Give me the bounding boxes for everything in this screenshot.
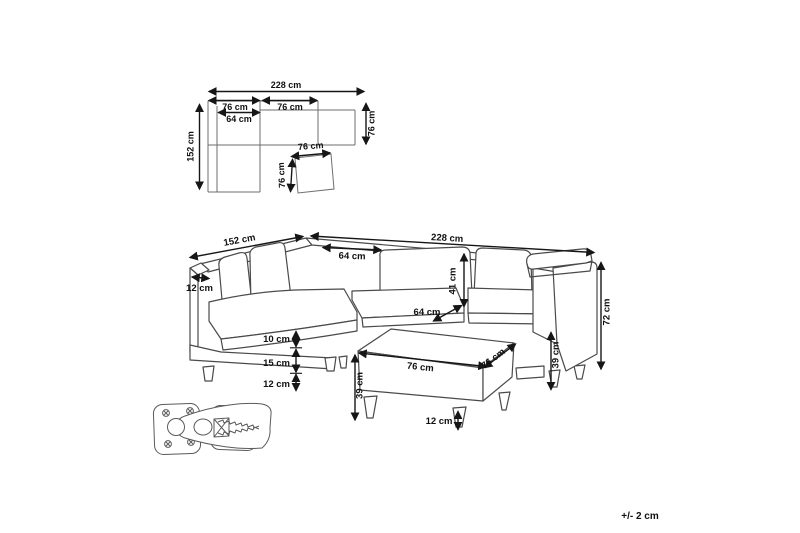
dim-ottoman-leg-height-label: 12 cm bbox=[426, 416, 453, 427]
ottoman-leg-rear-right bbox=[499, 392, 510, 410]
plan-dim-right-module-label: 76 cm bbox=[277, 102, 303, 112]
base-right-front bbox=[516, 366, 544, 379]
dim-ottoman-height-label: 39 cm bbox=[355, 372, 366, 399]
sofa-leg-corner-a bbox=[325, 357, 336, 371]
bracket-loop bbox=[194, 419, 212, 435]
ottoman bbox=[358, 329, 514, 427]
perspective-view: 152 cm 228 cm 64 cm 12 cm 41 cm 64 cm 10… bbox=[186, 232, 612, 429]
dimension-diagram: 228 cm 76 cm 76 cm 64 cm 152 cm 76 cm 76… bbox=[0, 0, 800, 533]
dim-leg-height-label: 12 cm bbox=[263, 379, 290, 390]
sofa-leg-corner-b bbox=[339, 356, 347, 368]
dim-back-cushion-width-label: 64 cm bbox=[338, 251, 365, 263]
dim-armrest-thickness-label: 12 cm bbox=[186, 283, 213, 294]
sofa-leg-left bbox=[203, 366, 214, 381]
bracket-pivot bbox=[168, 419, 185, 436]
dim-backrest-height-label: 41 cm bbox=[448, 268, 459, 295]
sofa-leg-right-side bbox=[574, 365, 585, 379]
dim-seat-cushion-height-label: 10 cm bbox=[263, 334, 290, 345]
left-panel-face bbox=[190, 268, 198, 352]
plan-dim-left-module-label: 76 cm bbox=[222, 102, 248, 112]
diagram-svg: 228 cm 76 cm 76 cm 64 cm 152 cm 76 cm 76… bbox=[0, 0, 800, 533]
ottoman-leg-front-right bbox=[453, 407, 466, 427]
plan-dim-total-depth-label: 152 cm bbox=[186, 131, 196, 162]
dim-total-height-label: 72 cm bbox=[602, 299, 613, 326]
connector-bracket-icon bbox=[153, 403, 271, 455]
plan-dim-ottoman-depth-label: 76 cm bbox=[276, 162, 287, 188]
plan-view: 228 cm 76 cm 76 cm 64 cm 152 cm 76 cm 76… bbox=[186, 80, 377, 193]
plan-dim-seat-width-label: 64 cm bbox=[226, 114, 252, 124]
dim-base-height-label: 15 cm bbox=[263, 358, 290, 369]
dim-seat-depth-label: 64 cm bbox=[414, 307, 441, 318]
dim-total-width-label: 228 cm bbox=[431, 232, 464, 245]
plan-dim-right-depth-label: 76 cm bbox=[367, 111, 377, 137]
plan-ottoman-outline bbox=[295, 154, 334, 193]
plan-dim-ottoman-depth-arrow bbox=[291, 160, 293, 192]
tolerance-note: +/- 2 cm bbox=[621, 511, 659, 522]
plan-dim-ottoman-width-label: 76 cm bbox=[298, 140, 324, 152]
base-left-front bbox=[190, 345, 333, 369]
plan-dim-total-width-label: 228 cm bbox=[271, 80, 302, 90]
dim-seat-height-label: 39 cm bbox=[551, 342, 562, 369]
ottoman-leg-front-left bbox=[364, 396, 377, 418]
